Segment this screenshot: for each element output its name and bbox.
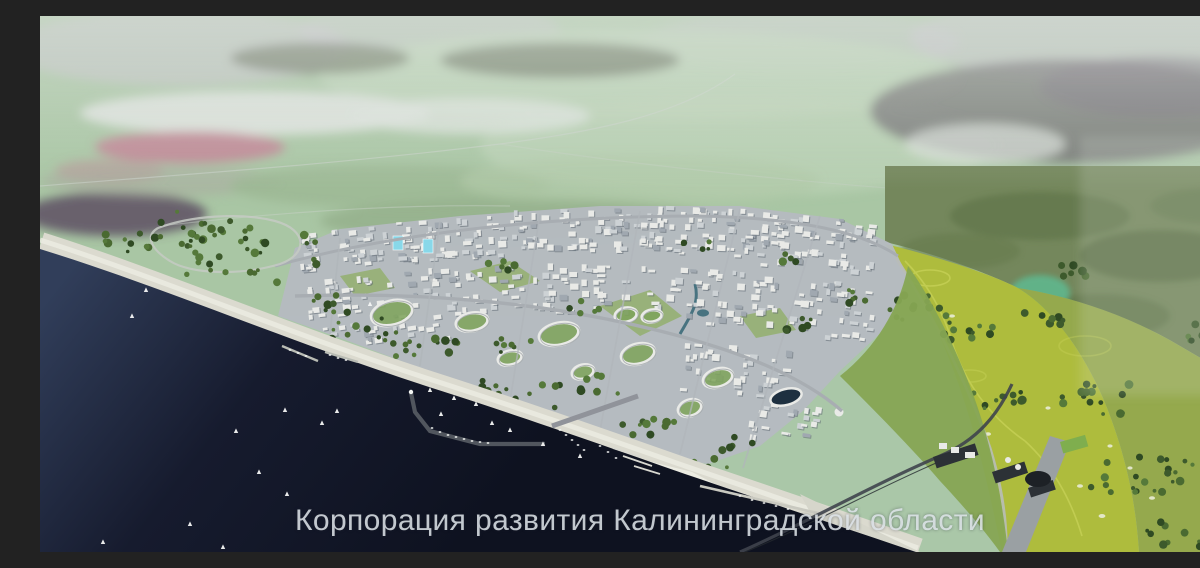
pond [1025, 471, 1051, 487]
render-canvas [40, 16, 1200, 552]
aerial-masterplan-render: Корпорация развития Калининградской обла… [40, 16, 1200, 552]
lighthouse [409, 390, 413, 394]
glass-tower [423, 239, 433, 253]
horizon-haze [40, 16, 1200, 191]
